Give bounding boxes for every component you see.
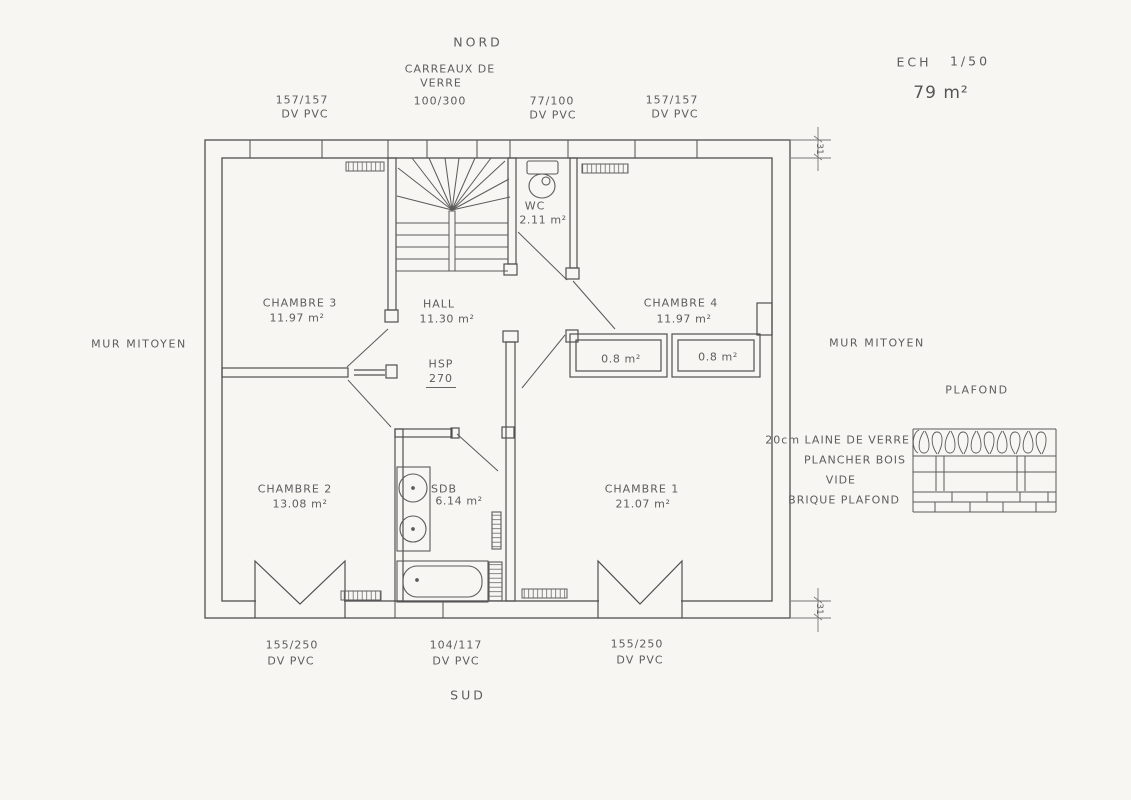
staircase (396, 158, 510, 271)
north-window-right-size: 157/157 (646, 94, 699, 107)
party-wall-left-label: MUR MITOYEN (91, 338, 187, 351)
ceiling-layer-brique-plafond: BRIQUE PLAFOND (788, 494, 900, 507)
room-name-chambre2: CHAMBRE 2 (258, 483, 333, 496)
scale-label: ECH (896, 55, 931, 70)
room-area-wc: 2.11 m² (519, 214, 566, 227)
south-window-right-size: 155/250 (611, 638, 664, 651)
ceiling-layer-vide: VIDE (826, 474, 856, 487)
room-name-chambre1: CHAMBRE 1 (605, 483, 680, 496)
south-window-left-size: 155/250 (266, 639, 319, 652)
room-area-chambre2: 13.08 m² (273, 498, 328, 511)
ceiling-detail-drawing (913, 429, 1056, 512)
floor-plan-page: NORD SUD CARREAUX DE VERRE 100/300 157/1… (0, 0, 1131, 800)
room-area-chambre4: 11.97 m² (657, 313, 712, 326)
south-window-right-material: DV PVC (616, 654, 663, 667)
toilet (527, 161, 558, 198)
sdb-radiator (492, 512, 501, 549)
ceiling-height-label: HSP (429, 358, 454, 371)
wall-dim-top: 31 (814, 143, 824, 154)
north-window-mid-material: DV PVC (529, 109, 576, 122)
ceiling-layer-laine-de-verre: 20cm LAINE DE VERRE (765, 434, 910, 447)
north-window-mid-size: 77/100 (530, 95, 575, 108)
room-area-sdb: 6.14 m² (435, 495, 482, 508)
north-label: NORD (453, 35, 503, 50)
bathtub (397, 561, 502, 602)
south-wall-window-joints (395, 601, 443, 618)
winder-treads (397, 158, 510, 210)
dimension-marks (791, 127, 831, 632)
radiator-chambre3 (346, 162, 384, 171)
radiator-chambre2 (341, 591, 381, 600)
north-wall-window-joints (250, 140, 697, 158)
room-area-chambre1: 21.07 m² (616, 498, 671, 511)
room-name-wc: WC (525, 200, 546, 213)
room-name-chambre4: CHAMBRE 4 (644, 297, 719, 310)
south-window-right-open (598, 561, 682, 618)
south-window-mid-size: 104/117 (430, 639, 483, 652)
north-window-left-material: DV PVC (281, 108, 328, 121)
radiator-chambre1 (522, 589, 567, 598)
south-window-mid-material: DV PVC (432, 655, 479, 668)
ceiling-layer-plancher-bois: PLANCHER BOIS (804, 454, 906, 467)
north-window-left-size: 157/157 (276, 94, 329, 107)
closet-left-area: 0.8 m² (601, 353, 641, 366)
room-area-chambre3: 11.97 m² (270, 312, 325, 325)
glass-block-type-line1: CARREAUX DE (405, 63, 495, 76)
room-name-chambre3: CHAMBRE 3 (263, 297, 338, 310)
wall-dim-bottom: 31 (814, 603, 824, 614)
south-window-left-open (255, 561, 345, 618)
south-window-left-material: DV PVC (267, 655, 314, 668)
room-name-hall: HALL (423, 298, 455, 311)
ceiling-height-value: 270 (426, 372, 456, 388)
radiator-chambre4 (582, 164, 628, 173)
vanity-double-basin (397, 467, 430, 551)
ceiling-detail-title: PLAFOND (945, 384, 1008, 397)
scale-value: 1/50 (950, 54, 990, 69)
glass-block-type-line2: VERRE (420, 77, 462, 90)
party-wall-right-label: MUR MITOYEN (829, 337, 925, 350)
closet-right-area: 0.8 m² (698, 351, 738, 364)
total-area: 79 m² (913, 83, 968, 103)
room-area-hall: 11.30 m² (420, 313, 475, 326)
radiators (341, 162, 628, 600)
glass-block-size: 100/300 (414, 95, 467, 108)
insulation-squiggle (913, 430, 1046, 454)
south-label: SUD (450, 688, 486, 703)
north-window-right-material: DV PVC (651, 108, 698, 121)
